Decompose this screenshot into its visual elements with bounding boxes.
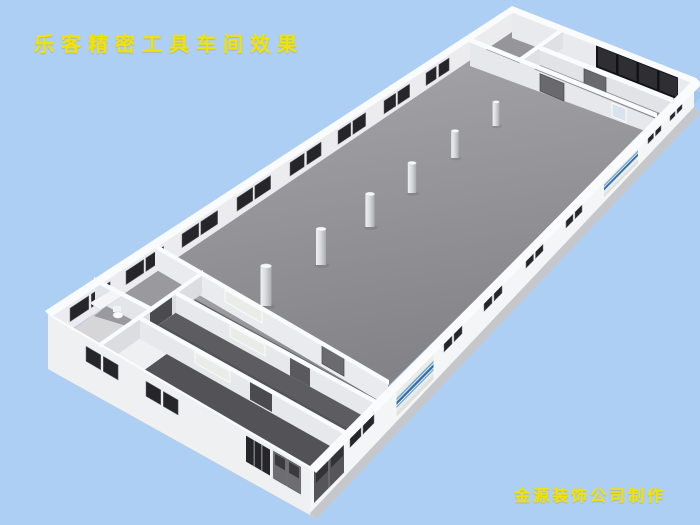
building-3d-render — [0, 0, 700, 525]
toilet-icon — [113, 312, 123, 318]
toilet-icon — [113, 306, 121, 312]
title-text: 乐客精密工具车间效果 — [34, 28, 304, 57]
credit-text: 金源装饰公司制作 — [514, 482, 666, 506]
workshop-render: 乐客精密工具车间效果 金源装饰公司制作 — [0, 0, 700, 525]
